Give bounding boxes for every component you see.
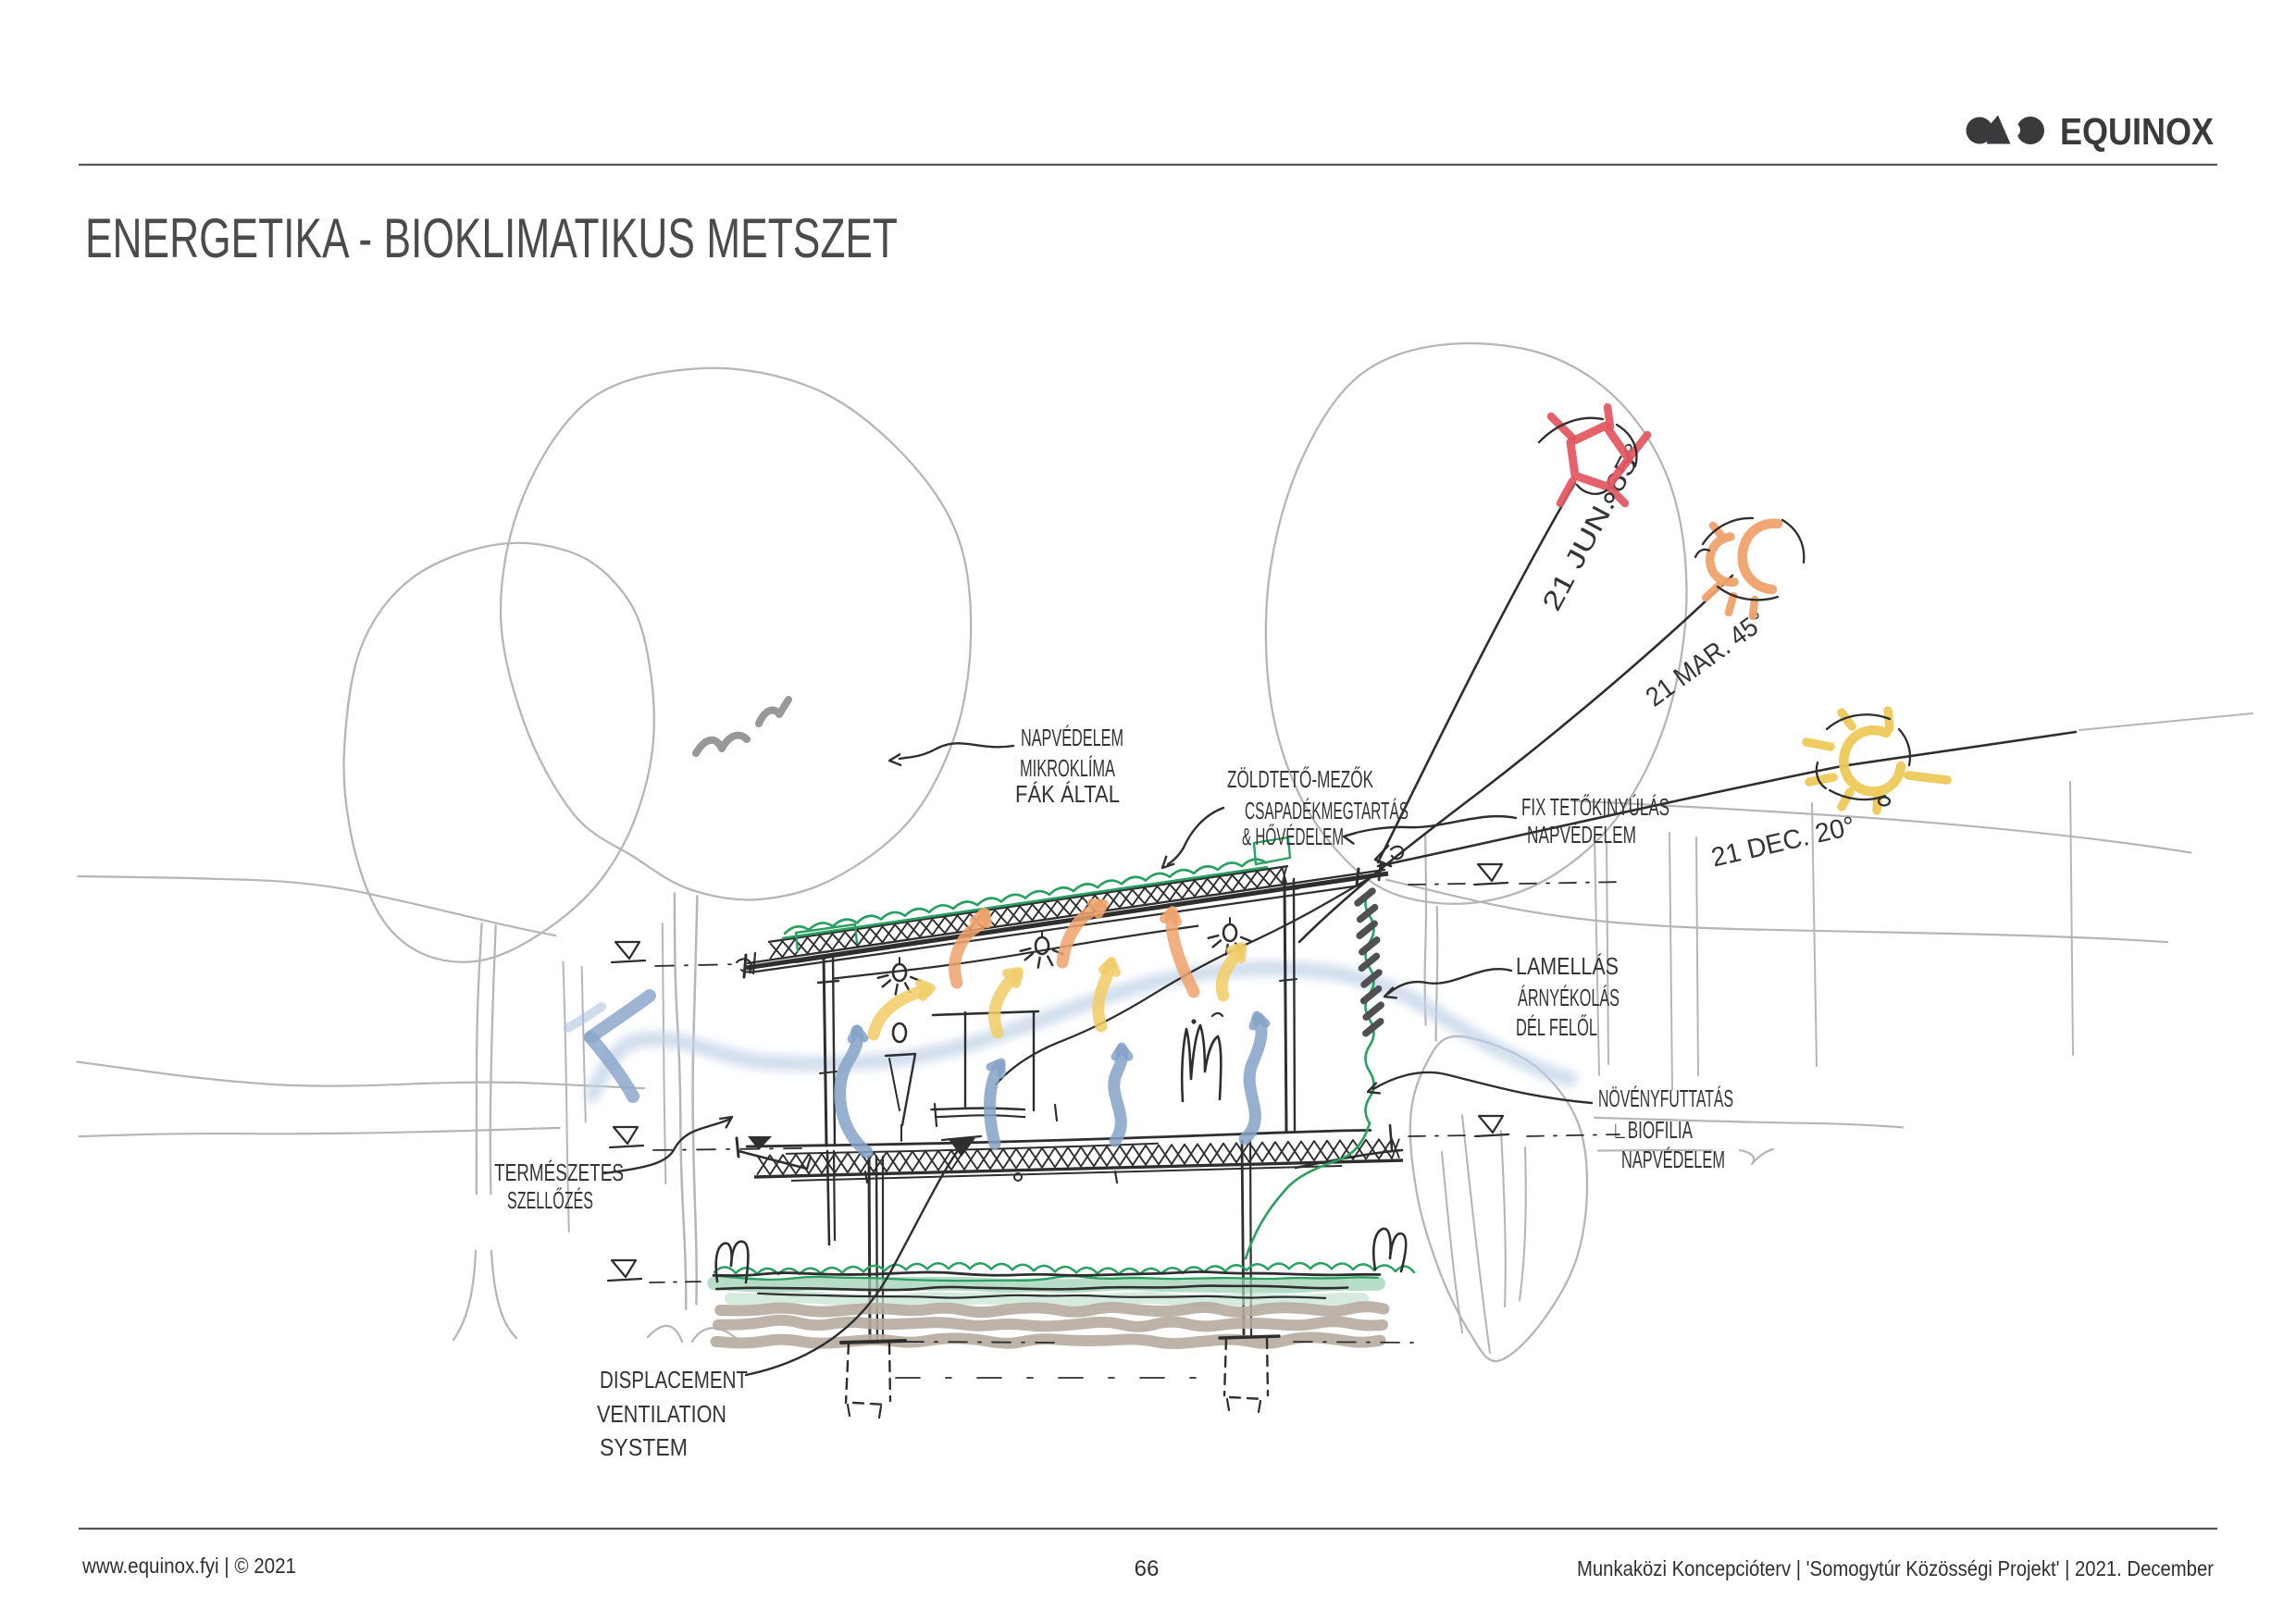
svg-text:ÁRNYÉKOLÁS: ÁRNYÉKOLÁS xyxy=(1518,984,1620,1011)
svg-text:∟BIOFILIA: ∟BIOFILIA xyxy=(1612,1116,1693,1144)
svg-text:NÖVÉNYFUTTATÁS: NÖVÉNYFUTTATÁS xyxy=(1598,1084,1733,1112)
svg-text:VENTILATION: VENTILATION xyxy=(597,1400,726,1428)
svg-text:SYSTEM: SYSTEM xyxy=(600,1433,688,1461)
svg-text:CSAPADÉKMEGTARTÁS: CSAPADÉKMEGTARTÁS xyxy=(1245,797,1409,824)
svg-text:Munkaközi Koncepcióterv | 'Som: Munkaközi Koncepcióterv | 'Somogytúr Köz… xyxy=(1577,1556,2214,1580)
svg-text:LAMELLÁS: LAMELLÁS xyxy=(1516,952,1619,980)
svg-text:21 MAR. 45°: 21 MAR. 45° xyxy=(1641,606,1772,712)
svg-text:www.equinox.fyi | © 2021: www.equinox.fyi | © 2021 xyxy=(81,1554,296,1578)
svg-text:DISPLACEMENT: DISPLACEMENT xyxy=(600,1366,748,1394)
svg-text:EQUINOX: EQUINOX xyxy=(2060,110,2214,153)
svg-text:66: 66 xyxy=(1135,1556,1160,1581)
svg-text:TERMÉSZETES: TERMÉSZETES xyxy=(494,1158,624,1186)
svg-text:ZÖLDTETŐ-MEZŐK: ZÖLDTETŐ-MEZŐK xyxy=(1227,765,1373,793)
svg-text:21 DEC. 20°: 21 DEC. 20° xyxy=(1708,811,1857,873)
svg-text:FIX TETŐKINYÚLÁS: FIX TETŐKINYÚLÁS xyxy=(1521,793,1669,821)
svg-text:SZELLŐZÉS: SZELLŐZÉS xyxy=(507,1186,593,1214)
svg-text:21 JUN. 65°: 21 JUN. 65° xyxy=(1537,439,1650,616)
svg-text:& HŐVÉDELEM: & HŐVÉDELEM xyxy=(1242,823,1344,850)
svg-text:DÉL FELŐL: DÉL FELŐL xyxy=(1516,1013,1597,1041)
svg-text:NAPVÉDELEM: NAPVÉDELEM xyxy=(1527,821,1636,849)
svg-text:ENERGETIKA - BIOKLIMATIKUS MET: ENERGETIKA - BIOKLIMATIKUS METSZET xyxy=(85,207,898,269)
svg-text:NAPVÉDELEM: NAPVÉDELEM xyxy=(1621,1146,1725,1173)
svg-text:FÁK ÁLTAL: FÁK ÁLTAL xyxy=(1015,780,1120,808)
svg-text:NAPVÉDELEM: NAPVÉDELEM xyxy=(1021,724,1123,751)
svg-text:MIKROKLÍMA: MIKROKLÍMA xyxy=(1020,754,1115,782)
